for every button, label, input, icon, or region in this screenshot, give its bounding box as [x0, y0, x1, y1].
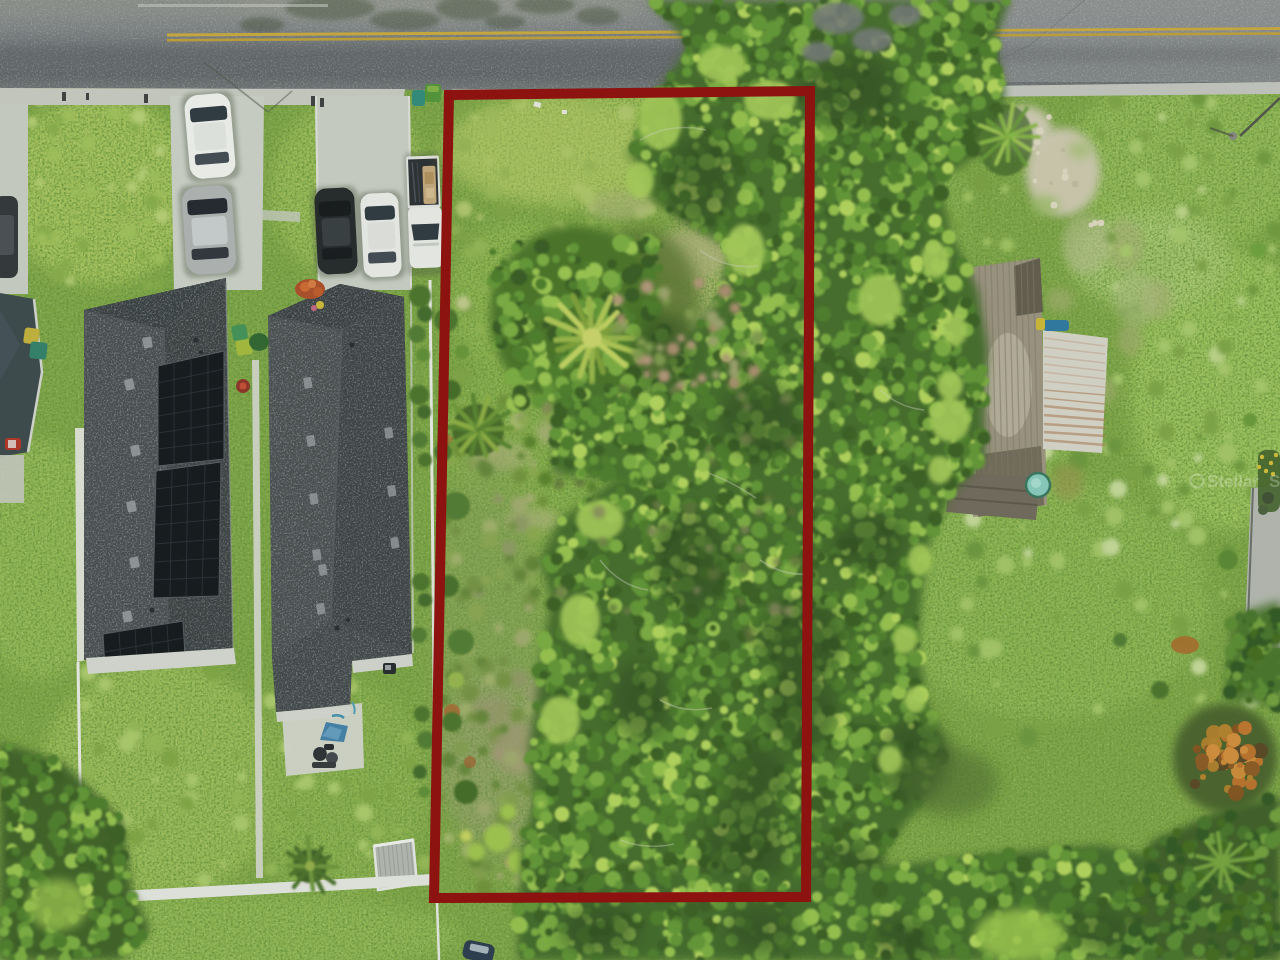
svg-text:S: S [1269, 472, 1280, 491]
svg-text:Stellar: Stellar [1207, 472, 1259, 491]
